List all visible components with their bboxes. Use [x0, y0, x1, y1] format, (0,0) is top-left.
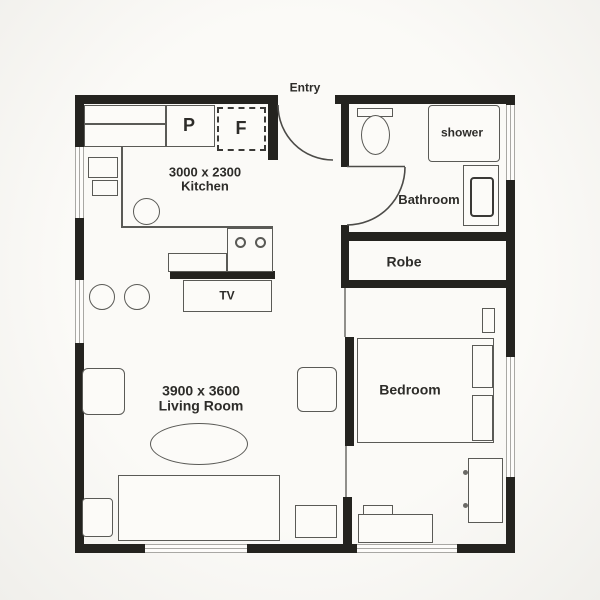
- fridge-label: F: [236, 119, 247, 139]
- opening-line-lower: [345, 446, 347, 497]
- sink: [133, 198, 160, 225]
- window-left-kitchen: [75, 147, 84, 218]
- appliance-box-2: [92, 180, 118, 196]
- bath-wall-upper: [341, 95, 349, 167]
- kitchen-bench-wall: [170, 271, 275, 279]
- kitchen-name: Kitchen: [169, 180, 241, 194]
- pantry-label: P: [183, 116, 195, 136]
- desk-knob-1: [463, 470, 468, 475]
- wall-left-upper: [75, 95, 84, 147]
- armchair-right: [297, 367, 337, 412]
- kitchen-counter-lower: [168, 253, 227, 272]
- wall-right-bottom: [506, 477, 515, 553]
- bathroom-label: Bathroom: [398, 193, 459, 207]
- desk-knob-2: [463, 503, 468, 508]
- kitchen-counter-top: [84, 105, 166, 147]
- wall-top-left: [75, 95, 278, 104]
- ottoman-right: [295, 505, 337, 538]
- entry-post: [268, 95, 278, 160]
- ottoman-left: [82, 498, 113, 537]
- counter-divider-line: [84, 123, 166, 125]
- wall-bottom-right: [457, 544, 515, 553]
- kitchen-dims: 3000 x 2300: [169, 166, 241, 180]
- wall-left-mid: [75, 218, 84, 280]
- opening-line-upper: [344, 288, 346, 337]
- kitchen-label: 3000 x 2300 Kitchen: [169, 166, 241, 195]
- shower-label: shower: [441, 126, 483, 139]
- bathroom-door-arc: [347, 167, 405, 225]
- robe-wall-top: [348, 232, 507, 241]
- window-right-bedroom: [506, 357, 515, 477]
- sofa: [118, 475, 280, 541]
- entry-label: Entry: [290, 81, 321, 94]
- bedroom-wall-lower: [343, 497, 352, 547]
- stool-1: [89, 284, 115, 310]
- living-room-name: Living Room: [159, 399, 244, 414]
- window-bottom-living: [145, 544, 247, 553]
- counter-edge-vertical: [121, 147, 123, 227]
- robe-label: Robe: [387, 254, 422, 269]
- wall-bottom-left: [75, 544, 145, 553]
- burner-2: [255, 237, 266, 248]
- pillow-1: [472, 345, 493, 388]
- window-right-bathroom: [506, 105, 515, 180]
- nightstand: [482, 308, 495, 333]
- window-bottom-bedroom: [357, 544, 457, 553]
- coffee-table: [150, 423, 248, 465]
- entry-door-arc: [278, 105, 333, 160]
- vanity-basin: [470, 177, 494, 217]
- toilet-bowl: [361, 115, 390, 155]
- robe-wall-bottom: [341, 280, 507, 288]
- stool-2: [124, 284, 150, 310]
- cooktop: [227, 228, 273, 272]
- wall-top-right: [335, 95, 515, 104]
- bench-item: [363, 505, 393, 515]
- wall-right-mid: [506, 180, 515, 357]
- living-room-dims: 3900 x 3600: [159, 384, 244, 399]
- pillow-2: [472, 395, 493, 441]
- burner-1: [235, 237, 246, 248]
- appliance-box-1: [88, 157, 118, 178]
- bench: [358, 514, 433, 543]
- tv-label: TV: [219, 289, 234, 302]
- bedroom-label: Bedroom: [379, 382, 440, 397]
- wall-bottom-mid: [247, 544, 357, 553]
- wall-right-top: [506, 95, 515, 105]
- window-left-living: [75, 280, 84, 343]
- living-room-label: 3900 x 3600 Living Room: [159, 384, 244, 415]
- bedroom-wall-upper: [345, 337, 354, 446]
- armchair-left: [82, 368, 125, 415]
- desk: [468, 458, 503, 523]
- floor-plan: Entry P F 3000 x 2300 Kitchen shower Bat…: [0, 0, 600, 600]
